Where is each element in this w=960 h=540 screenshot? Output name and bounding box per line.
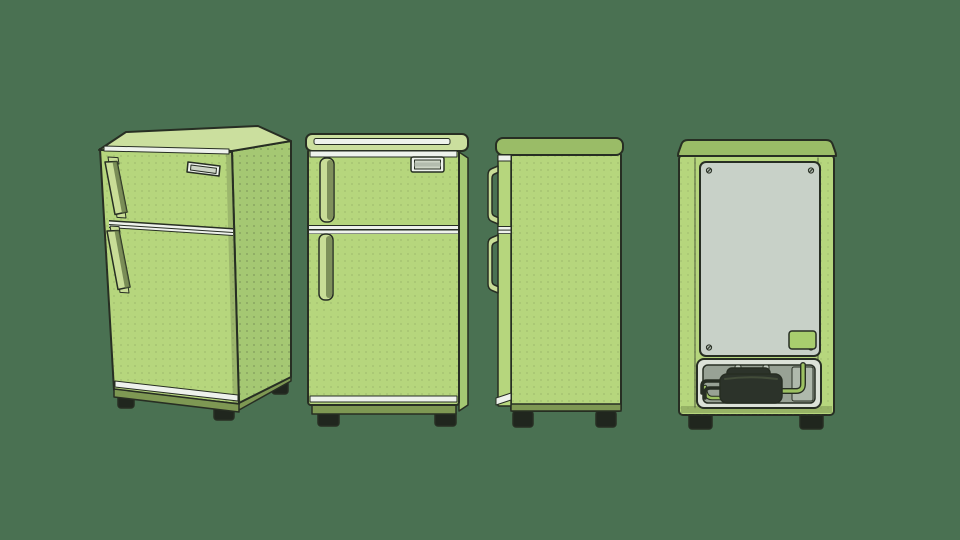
fridge-three-quarter-view bbox=[99, 126, 291, 420]
base-plinth bbox=[511, 404, 621, 411]
service-label bbox=[789, 331, 816, 349]
top-trim bbox=[310, 151, 457, 157]
door-edge bbox=[498, 155, 511, 406]
door-divider-trim bbox=[309, 231, 458, 234]
door-divider-trim bbox=[309, 226, 458, 229]
fridge-back-view bbox=[678, 140, 836, 429]
door-divider-trim bbox=[499, 227, 511, 230]
handle-shade bbox=[326, 236, 332, 298]
top-cap bbox=[496, 138, 623, 155]
top-trim bbox=[498, 155, 511, 161]
bottom-trim bbox=[310, 396, 457, 402]
texture-overlay bbox=[511, 153, 621, 411]
texture-overlay bbox=[232, 141, 291, 403]
fridge-handle bbox=[488, 235, 498, 293]
handle-shade bbox=[327, 160, 333, 220]
foot bbox=[596, 411, 616, 427]
top-cap bbox=[678, 140, 836, 156]
door-divider-trim bbox=[499, 231, 511, 234]
cap-trim bbox=[314, 139, 450, 145]
freezer-handle bbox=[488, 166, 498, 224]
illustration-canvas bbox=[0, 0, 960, 540]
refrigerator-four-views-illustration bbox=[0, 0, 960, 540]
cabinet-side bbox=[459, 152, 468, 411]
fridge-side-view bbox=[488, 138, 623, 427]
back-panel bbox=[700, 162, 820, 356]
brand-plate-bar bbox=[415, 163, 441, 167]
fridge-front-view bbox=[306, 134, 468, 426]
foot bbox=[513, 411, 533, 427]
